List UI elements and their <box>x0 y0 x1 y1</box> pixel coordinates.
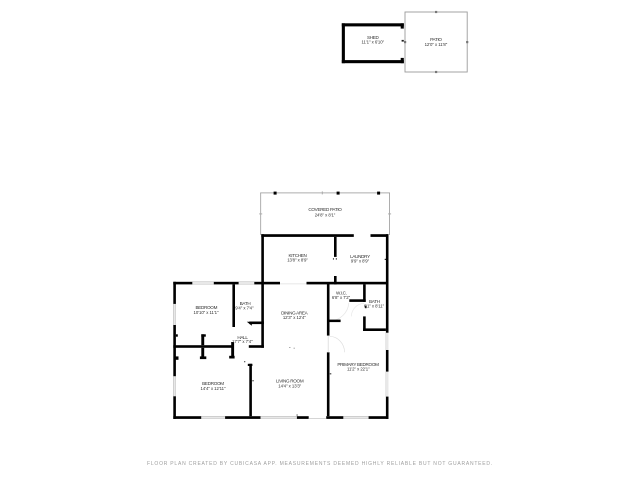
svg-text:12'0" x 11'8": 12'0" x 11'8" <box>425 42 448 47</box>
svg-text:9'9" x 8'9": 9'9" x 8'9" <box>351 259 370 264</box>
svg-text:6'1" x 8'11": 6'1" x 8'11" <box>364 304 385 309</box>
svg-text:10'10" x 11'1": 10'10" x 11'1" <box>194 310 219 315</box>
svg-text:14'4" x 13'3": 14'4" x 13'3" <box>278 384 301 389</box>
svg-text:6'8" x 7'2": 6'8" x 7'2" <box>332 295 351 300</box>
svg-text:12'3" x 12'4": 12'3" x 12'4" <box>283 315 306 320</box>
svg-text:11'1" x 6'10": 11'1" x 6'10" <box>361 40 384 45</box>
svg-text:11'2" x 22'1": 11'2" x 22'1" <box>347 367 370 372</box>
svg-text:COVERED PATIO: COVERED PATIO <box>308 207 342 212</box>
svg-text:24'8" x 8'1": 24'8" x 8'1" <box>315 212 336 217</box>
svg-text:13'8" x 8'9": 13'8" x 8'9" <box>287 257 308 262</box>
svg-text:9'4" x 7'4": 9'4" x 7'4" <box>235 306 254 311</box>
svg-text:17'7" x 7'4": 17'7" x 7'4" <box>232 339 253 344</box>
svg-text:14'4" x 12'11": 14'4" x 12'11" <box>201 386 226 391</box>
svg-text:FLOOR PLAN CREATED BY CUBICASA: FLOOR PLAN CREATED BY CUBICASA APP. MEAS… <box>147 461 493 467</box>
